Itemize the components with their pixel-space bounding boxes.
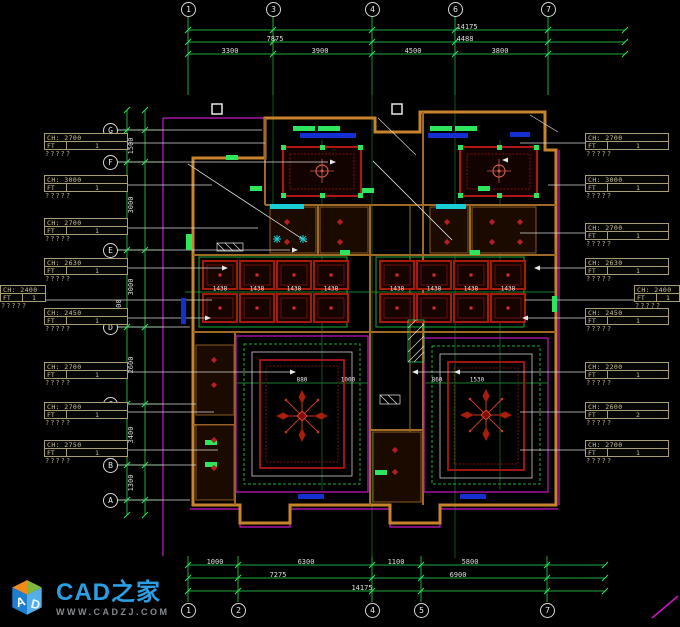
dimension-text: 3900 — [312, 47, 329, 55]
callout-ft-label: FT — [45, 449, 67, 456]
callout-note: ????? — [585, 192, 669, 201]
callout-note: ????? — [585, 150, 669, 159]
callout-ft-value: 1 — [67, 449, 127, 456]
ceiling-callout: CH: 3000FT1????? — [44, 175, 128, 201]
callout-ft-label: FT — [45, 142, 67, 149]
ceiling-callout: CH: 2450FT1????? — [44, 308, 128, 334]
grid-bubble-top: 7 — [541, 2, 556, 17]
ceiling-callout: CH: 2400FT1????? — [0, 285, 46, 311]
callout-ft-label: FT — [45, 267, 67, 274]
callout-ceiling-height: CH: 3000 — [586, 176, 668, 183]
callout-note: ????? — [44, 235, 128, 244]
callout-note: ????? — [585, 275, 669, 284]
ceiling-callout: CH: 2700FT1????? — [585, 133, 669, 159]
callout-ceiling-height: CH: 2630 — [586, 259, 668, 266]
grid-bubble-top: 6 — [448, 2, 463, 17]
plan-dimension-text: 1000 — [341, 377, 355, 384]
callout-ft-value: 1 — [67, 184, 127, 191]
dimension-text: 1000 — [207, 558, 224, 566]
plan-dimension-text: 1438 — [324, 286, 338, 293]
plan-dimension-text: 1530 — [470, 377, 484, 384]
callout-note: ????? — [585, 325, 669, 334]
plan-dimension-text: 1438 — [427, 286, 441, 293]
callout-ft-label: FT — [635, 294, 657, 301]
callout-ceiling-height: CH: 2600 — [586, 403, 668, 410]
callout-ft-value: 1 — [608, 184, 668, 191]
callout-ft-label: FT — [1, 294, 23, 301]
grid-bubble-bottom: 4 — [365, 603, 380, 618]
callout-ft-value: 2 — [608, 411, 668, 418]
callout-note: ????? — [585, 379, 669, 388]
plan-dimension-text: 1438 — [250, 286, 264, 293]
callout-note: ????? — [585, 240, 669, 249]
ceiling-callout: CH: 2750FT1????? — [44, 440, 128, 466]
callout-ceiling-height: CH: 2700 — [45, 219, 127, 226]
grid-bubble-bottom: 1 — [181, 603, 196, 618]
dimension-text-vertical: 3000 — [127, 279, 135, 296]
dimension-text: 1100 — [388, 558, 405, 566]
callout-ceiling-height: CH: 2700 — [45, 134, 127, 141]
ceiling-callout: CH: 2600FT2????? — [585, 402, 669, 428]
ceiling-callout: CH: 2700FT1????? — [44, 362, 128, 388]
callout-ft-label: FT — [586, 449, 608, 456]
logo-cube-letter-d: D — [29, 597, 41, 613]
callout-ft-label: FT — [586, 184, 608, 191]
callout-ceiling-height: CH: 2700 — [45, 403, 127, 410]
callout-ft-label: FT — [45, 317, 67, 324]
callout-ft-value: 1 — [67, 411, 127, 418]
callout-ceiling-height: CH: 2700 — [45, 363, 127, 370]
logo-title: CAD之家 — [56, 581, 170, 605]
logo-subtitle: WWW.CADZJ.COM — [56, 607, 170, 617]
ceiling-callout: CH: 2700FT1????? — [44, 133, 128, 159]
callout-ceiling-height: CH: 2450 — [45, 309, 127, 316]
callout-ft-value: 1 — [67, 227, 127, 234]
dimension-text: 7875 — [267, 35, 284, 43]
callout-ft-value: 1 — [67, 371, 127, 378]
dimension-text-vertical: 2600 — [127, 357, 135, 374]
ceiling-callout: CH: 2700FT1????? — [585, 440, 669, 466]
callout-note: ????? — [44, 275, 128, 284]
grid-bubble-bottom: 7 — [540, 603, 555, 618]
dimension-text: 3800 — [492, 47, 509, 55]
callout-note: ????? — [44, 457, 128, 466]
callout-note: ????? — [44, 379, 128, 388]
dimension-text: 6300 — [298, 558, 315, 566]
dimension-text: 7275 — [270, 571, 287, 579]
callout-note: ????? — [585, 457, 669, 466]
dimension-text: 14175 — [456, 23, 477, 31]
callout-ft-value: 1 — [608, 267, 668, 274]
dimension-text-vertical: 3400 — [127, 427, 135, 444]
callout-ft-label: FT — [586, 317, 608, 324]
callout-ceiling-height: CH: 2400 — [1, 286, 45, 293]
callout-ft-value: 1 — [67, 142, 127, 149]
dimension-text-vertical: 3000 — [127, 197, 135, 214]
callout-note: ????? — [44, 419, 128, 428]
callout-ceiling-height: CH: 2700 — [586, 441, 668, 448]
callout-ceiling-height: CH: 2750 — [45, 441, 127, 448]
ceiling-callout: CH: 2700FT1????? — [44, 402, 128, 428]
callout-ft-label: FT — [586, 267, 608, 274]
plan-dimension-text: 1438 — [501, 286, 515, 293]
grid-bubble-top: 4 — [365, 2, 380, 17]
callout-ft-label: FT — [45, 371, 67, 378]
plan-dimension-text: 880 — [297, 377, 308, 384]
grid-bubble-top: 3 — [266, 2, 281, 17]
plan-dimension-text: 1438 — [287, 286, 301, 293]
ceiling-callout: CH: 2700FT1????? — [44, 218, 128, 244]
callout-ft-label: FT — [45, 411, 67, 418]
ceiling-callout: CH: 2630FT1????? — [585, 258, 669, 284]
plan-dimension-text: 1438 — [213, 286, 227, 293]
callout-note: ????? — [44, 192, 128, 201]
ceiling-medallion-left — [276, 390, 328, 442]
dimension-text: 4488 — [457, 35, 474, 43]
dimension-text: 6900 — [450, 571, 467, 579]
callout-ceiling-height: CH: 2700 — [586, 224, 668, 231]
callout-ft-label: FT — [45, 227, 67, 234]
callout-ft-value: 1 — [608, 232, 668, 239]
callout-note: ????? — [44, 325, 128, 334]
site-logo[interactable]: A D CAD之家 WWW.CADZJ.COM — [6, 578, 170, 620]
ceiling-callout: CH: 3000FT1????? — [585, 175, 669, 201]
callout-ft-value: 1 — [608, 142, 668, 149]
grid-bubble-bottom: 2 — [231, 603, 246, 618]
callout-ft-value: 1 — [23, 294, 45, 301]
callout-ft-value: 1 — [67, 317, 127, 324]
callout-ft-value: 1 — [67, 267, 127, 274]
grid-bubble-left: A — [103, 493, 118, 508]
grid-bubble-left: E — [103, 243, 118, 258]
plan-dimension-text: 1438 — [390, 286, 404, 293]
callout-note: ????? — [44, 150, 128, 159]
callout-ft-label: FT — [586, 411, 608, 418]
callout-ceiling-height: CH: 3000 — [45, 176, 127, 183]
dimension-text-vertical: 1500 — [127, 138, 135, 155]
plan-dimension-text: 1438 — [464, 286, 478, 293]
callout-note: ????? — [585, 419, 669, 428]
callout-ft-value: 1 — [608, 371, 668, 378]
callout-ft-value: 1 — [608, 317, 668, 324]
callout-ft-label: FT — [586, 371, 608, 378]
callout-ft-label: FT — [45, 184, 67, 191]
dimension-text: 3300 — [222, 47, 239, 55]
dimension-text: 4500 — [405, 47, 422, 55]
small-rooms — [196, 207, 536, 502]
callout-ft-value: 1 — [608, 449, 668, 456]
dimension-text: 14175 — [351, 584, 372, 592]
dimension-text: 5800 — [462, 558, 479, 566]
callout-ft-label: FT — [586, 232, 608, 239]
callout-ceiling-height: CH: 2630 — [45, 259, 127, 266]
ceiling-callout: CH: 2400FT1????? — [634, 285, 680, 311]
ceiling-callout: CH: 2630FT1????? — [44, 258, 128, 284]
callout-ft-value: 1 — [657, 294, 679, 301]
dimension-text-vertical: 1300 — [127, 475, 135, 492]
grid-bubble-top: 1 — [181, 2, 196, 17]
reference-squares — [212, 104, 402, 114]
ceiling-callout: CH: 2700FT1????? — [585, 223, 669, 249]
callout-note: ????? — [634, 302, 680, 311]
grid-bubble-bottom: 5 — [414, 603, 429, 618]
callout-ft-label: FT — [586, 142, 608, 149]
cad-drawing-canvas: 1346712457GFEDCBA14175787544883300390045… — [0, 0, 680, 627]
callout-ceiling-height: CH: 2400 — [635, 286, 679, 293]
callout-note: ????? — [0, 302, 46, 311]
logo-cube-icon: A D — [6, 578, 48, 620]
ceiling-medallion-right — [460, 389, 512, 441]
plan-dimension-text: 860 — [432, 377, 443, 384]
callout-ceiling-height: CH: 2200 — [586, 363, 668, 370]
callout-ceiling-height: CH: 2700 — [586, 134, 668, 141]
ceiling-callout: CH: 2200FT1????? — [585, 362, 669, 388]
ceiling-callout: CH: 2450FT1????? — [585, 308, 669, 334]
